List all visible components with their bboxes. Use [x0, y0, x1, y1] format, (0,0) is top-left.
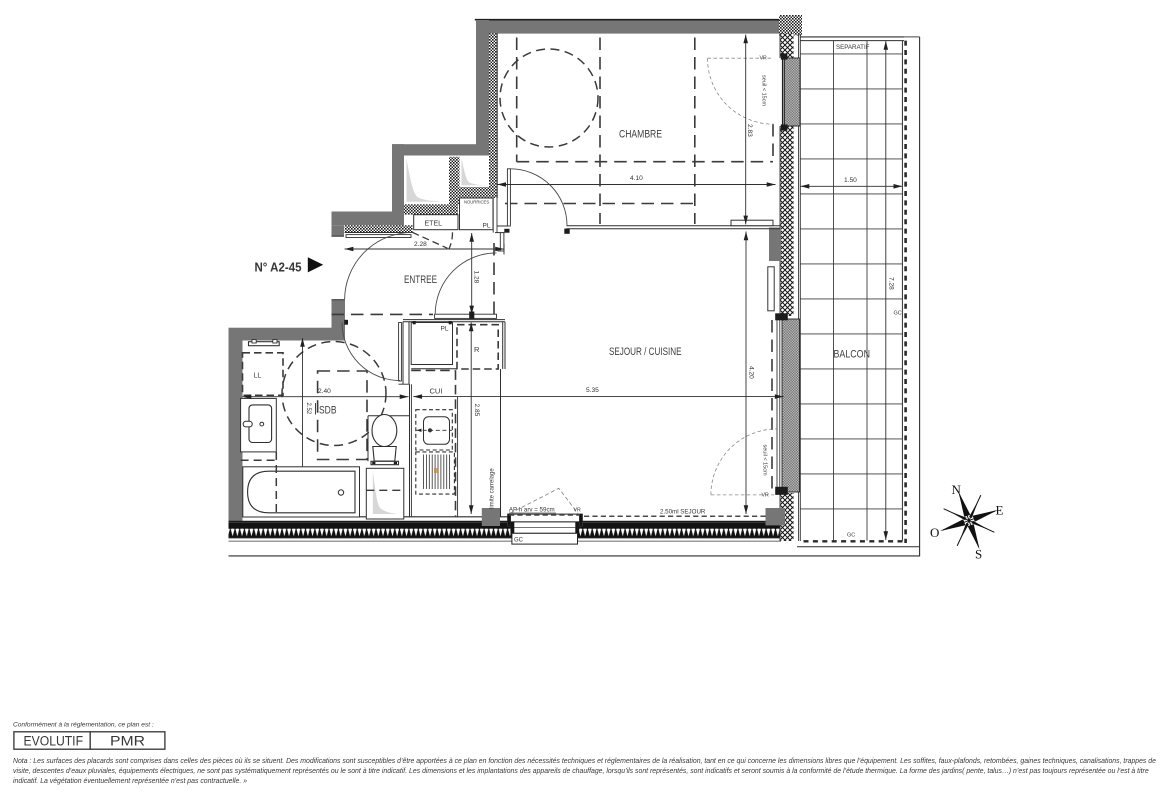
svg-text:2.40: 2.40: [318, 388, 331, 395]
svg-text:S: S: [975, 547, 982, 562]
svg-text:SEJOUR / CUISINE: SEJOUR / CUISINE: [609, 346, 682, 358]
svg-text:2.85: 2.85: [473, 404, 480, 417]
svg-text:ENTREE: ENTREE: [404, 274, 437, 286]
svg-text:limite carrelage: limite carrelage: [490, 468, 496, 509]
svg-text:indicatif. La végétation évent: indicatif. La végétation éventuellement …: [13, 778, 247, 785]
svg-text:2.52: 2.52: [305, 403, 311, 415]
svg-text:PL: PL: [441, 326, 449, 333]
svg-text:1.50: 1.50: [844, 177, 857, 184]
svg-text:VR: VR: [574, 508, 581, 514]
svg-text:GC: GC: [514, 538, 524, 544]
svg-text:N° A2-45: N° A2-45: [255, 260, 302, 275]
svg-text:GC: GC: [847, 533, 855, 539]
svg-text:PL: PL: [483, 223, 491, 230]
svg-text:7.28: 7.28: [887, 277, 894, 290]
svg-text:NOURRICES: NOURRICES: [464, 200, 489, 205]
svg-text:2.83: 2.83: [746, 124, 753, 137]
svg-text:seuil < 15cm: seuil < 15cm: [762, 445, 768, 476]
svg-text:visite, descentes d’eaux pluvi: visite, descentes d’eaux pluviales, équi…: [13, 768, 1149, 775]
svg-text:4.10: 4.10: [630, 175, 643, 182]
svg-text:CUI: CUI: [430, 386, 443, 395]
svg-text:SDB: SDB: [319, 405, 337, 417]
svg-text:2.50ml SEJOUR: 2.50ml SEJOUR: [660, 508, 706, 515]
svg-text:VR: VR: [760, 55, 767, 61]
svg-text:BALCON: BALCON: [834, 349, 871, 361]
svg-text:2.28: 2.28: [414, 241, 427, 248]
svg-text:O: O: [930, 525, 939, 540]
svg-text:N: N: [952, 482, 962, 497]
svg-text:5.35: 5.35: [586, 387, 599, 394]
svg-text:1.28: 1.28: [473, 271, 480, 284]
svg-text:R: R: [474, 345, 480, 354]
svg-text:E: E: [996, 503, 1004, 518]
svg-text:PMR: PMR: [110, 734, 145, 749]
svg-text:AP h arv = 59cm: AP h arv = 59cm: [509, 507, 555, 514]
svg-text:CHAMBRE: CHAMBRE: [619, 129, 662, 141]
svg-text:ETEL: ETEL: [425, 221, 443, 228]
svg-text:VR: VR: [762, 493, 769, 499]
svg-text:EVOLUTIF: EVOLUTIF: [24, 734, 84, 749]
svg-text:LL: LL: [254, 373, 262, 380]
svg-text:4.20: 4.20: [748, 366, 755, 379]
svg-text:Nota : Les surfaces des placar: Nota : Les surfaces des placards sont co…: [13, 758, 1156, 765]
svg-text:seuil < 15cm: seuil < 15cm: [761, 75, 767, 106]
svg-text:SEPARATIF: SEPARATIF: [836, 44, 870, 51]
svg-text:Conformément à la réglementati: Conformément à la réglementation, ce pla…: [13, 722, 154, 729]
svg-text:GC: GC: [894, 311, 902, 317]
